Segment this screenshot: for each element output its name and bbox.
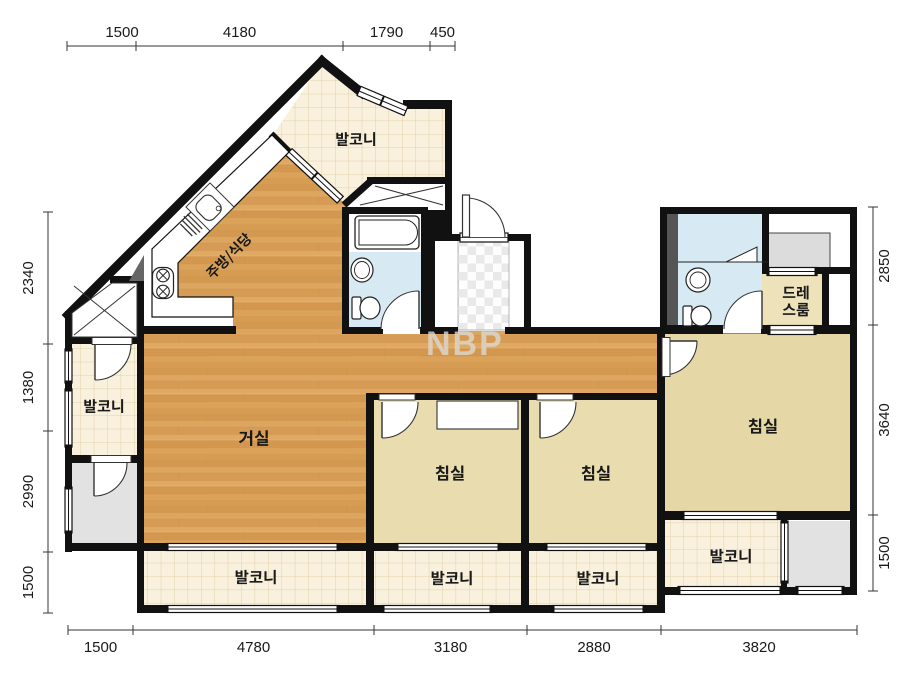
svg-text:3820: 3820: [742, 639, 775, 656]
svg-text:4780: 4780: [237, 639, 270, 656]
svg-text:4180: 4180: [223, 24, 256, 41]
svg-text:2340: 2340: [20, 261, 37, 294]
svg-text:1500: 1500: [105, 24, 138, 41]
svg-text:2850: 2850: [876, 249, 893, 282]
svg-text:1500: 1500: [876, 536, 893, 569]
svg-text:1500: 1500: [84, 639, 117, 656]
svg-text:450: 450: [430, 24, 455, 41]
svg-text:NBP: NBP: [426, 325, 504, 363]
svg-text:3640: 3640: [876, 403, 893, 436]
svg-text:1380: 1380: [20, 371, 37, 404]
svg-text:1500: 1500: [20, 566, 37, 599]
svg-text:2990: 2990: [20, 475, 37, 508]
svg-text:2880: 2880: [577, 639, 610, 656]
svg-text:3180: 3180: [434, 639, 467, 656]
svg-text:1790: 1790: [370, 24, 403, 41]
